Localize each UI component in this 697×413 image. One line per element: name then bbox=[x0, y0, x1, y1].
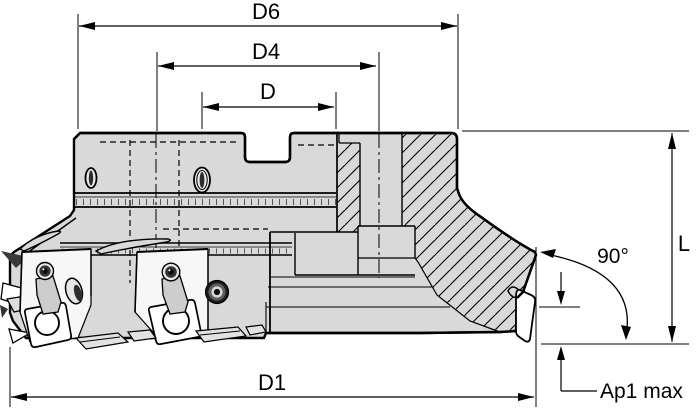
d4-label: D4 bbox=[252, 39, 280, 64]
set-screw-small bbox=[86, 168, 97, 188]
cutter-body bbox=[0, 133, 536, 349]
technical-drawing-canvas: D6 D4 D D1 bbox=[0, 0, 697, 413]
clamp-screw-1 bbox=[37, 263, 54, 280]
angle-label: 90° bbox=[597, 245, 629, 268]
d1-label: D1 bbox=[258, 370, 286, 395]
torx-screw bbox=[206, 281, 229, 304]
clamp-screw-2 bbox=[162, 263, 180, 281]
l-label: L bbox=[678, 231, 690, 256]
face-mill-dimension-drawing: D6 D4 D D1 bbox=[0, 0, 697, 413]
hatch-band-upper bbox=[337, 143, 360, 232]
d-label: D bbox=[260, 79, 276, 104]
insert-pocket-1 bbox=[20, 249, 91, 347]
ap1-label: Ap1 max bbox=[600, 380, 683, 403]
d6-label: D6 bbox=[252, 0, 280, 24]
set-screw-large bbox=[194, 168, 210, 193]
insert-hole-1 bbox=[35, 311, 59, 335]
